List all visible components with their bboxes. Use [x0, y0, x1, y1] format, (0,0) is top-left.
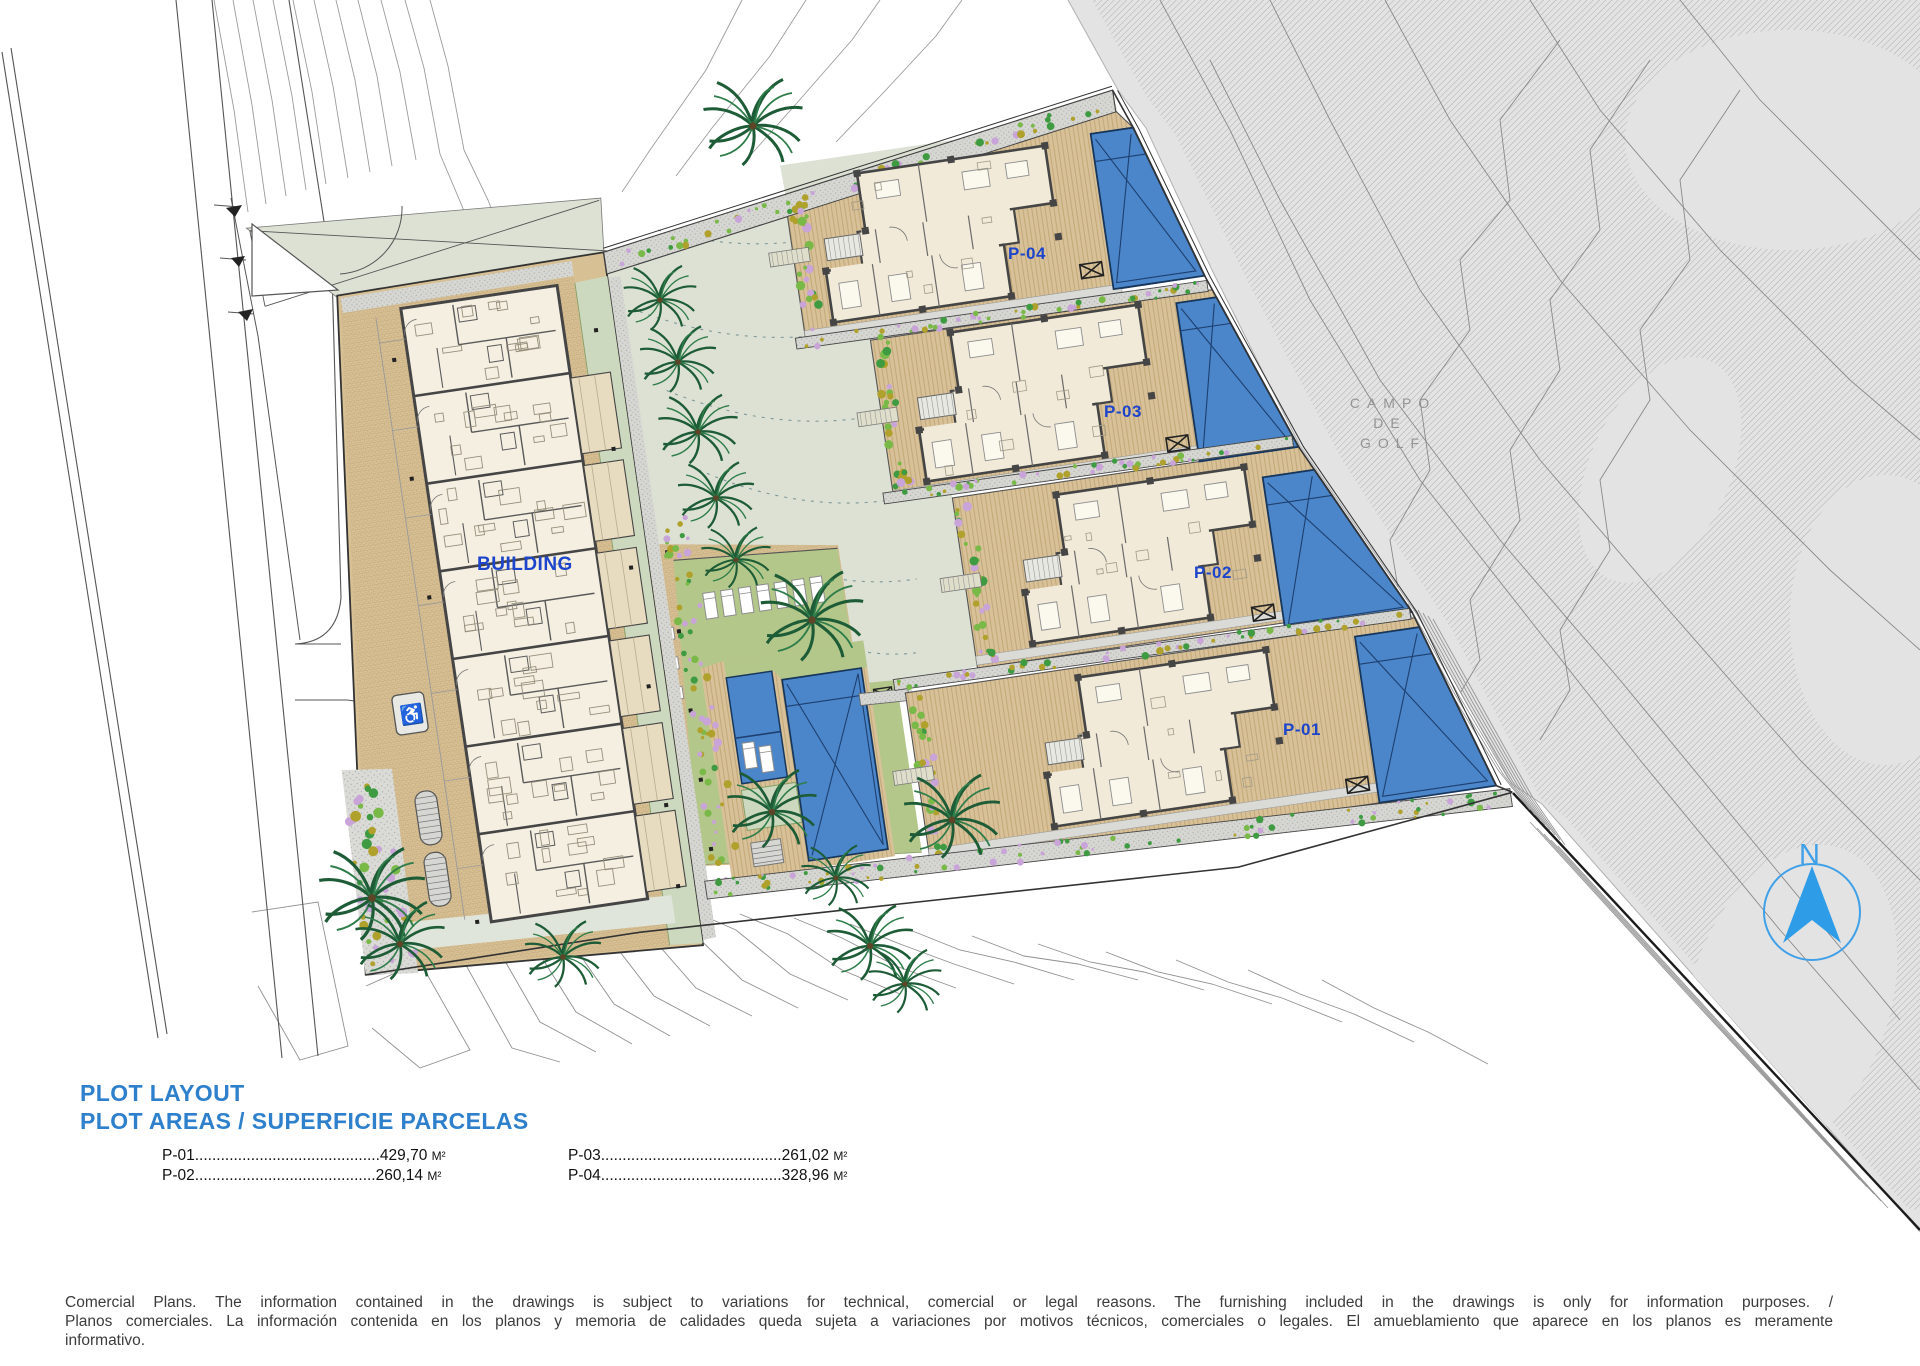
svg-text:P-02: P-02 — [1194, 563, 1232, 582]
svg-text:P-04: P-04 — [1008, 244, 1046, 263]
svg-text:P-03: P-03 — [1104, 402, 1142, 421]
svg-text:CAMPO: CAMPO — [1350, 395, 1436, 411]
svg-text:N: N — [1799, 839, 1820, 871]
svg-text:♿: ♿ — [399, 702, 426, 728]
svg-text:P-01: P-01 — [1283, 720, 1321, 739]
svg-text:DE: DE — [1373, 415, 1406, 431]
svg-text:GOLF: GOLF — [1360, 435, 1426, 451]
svg-text:BUILDING: BUILDING — [477, 554, 573, 575]
